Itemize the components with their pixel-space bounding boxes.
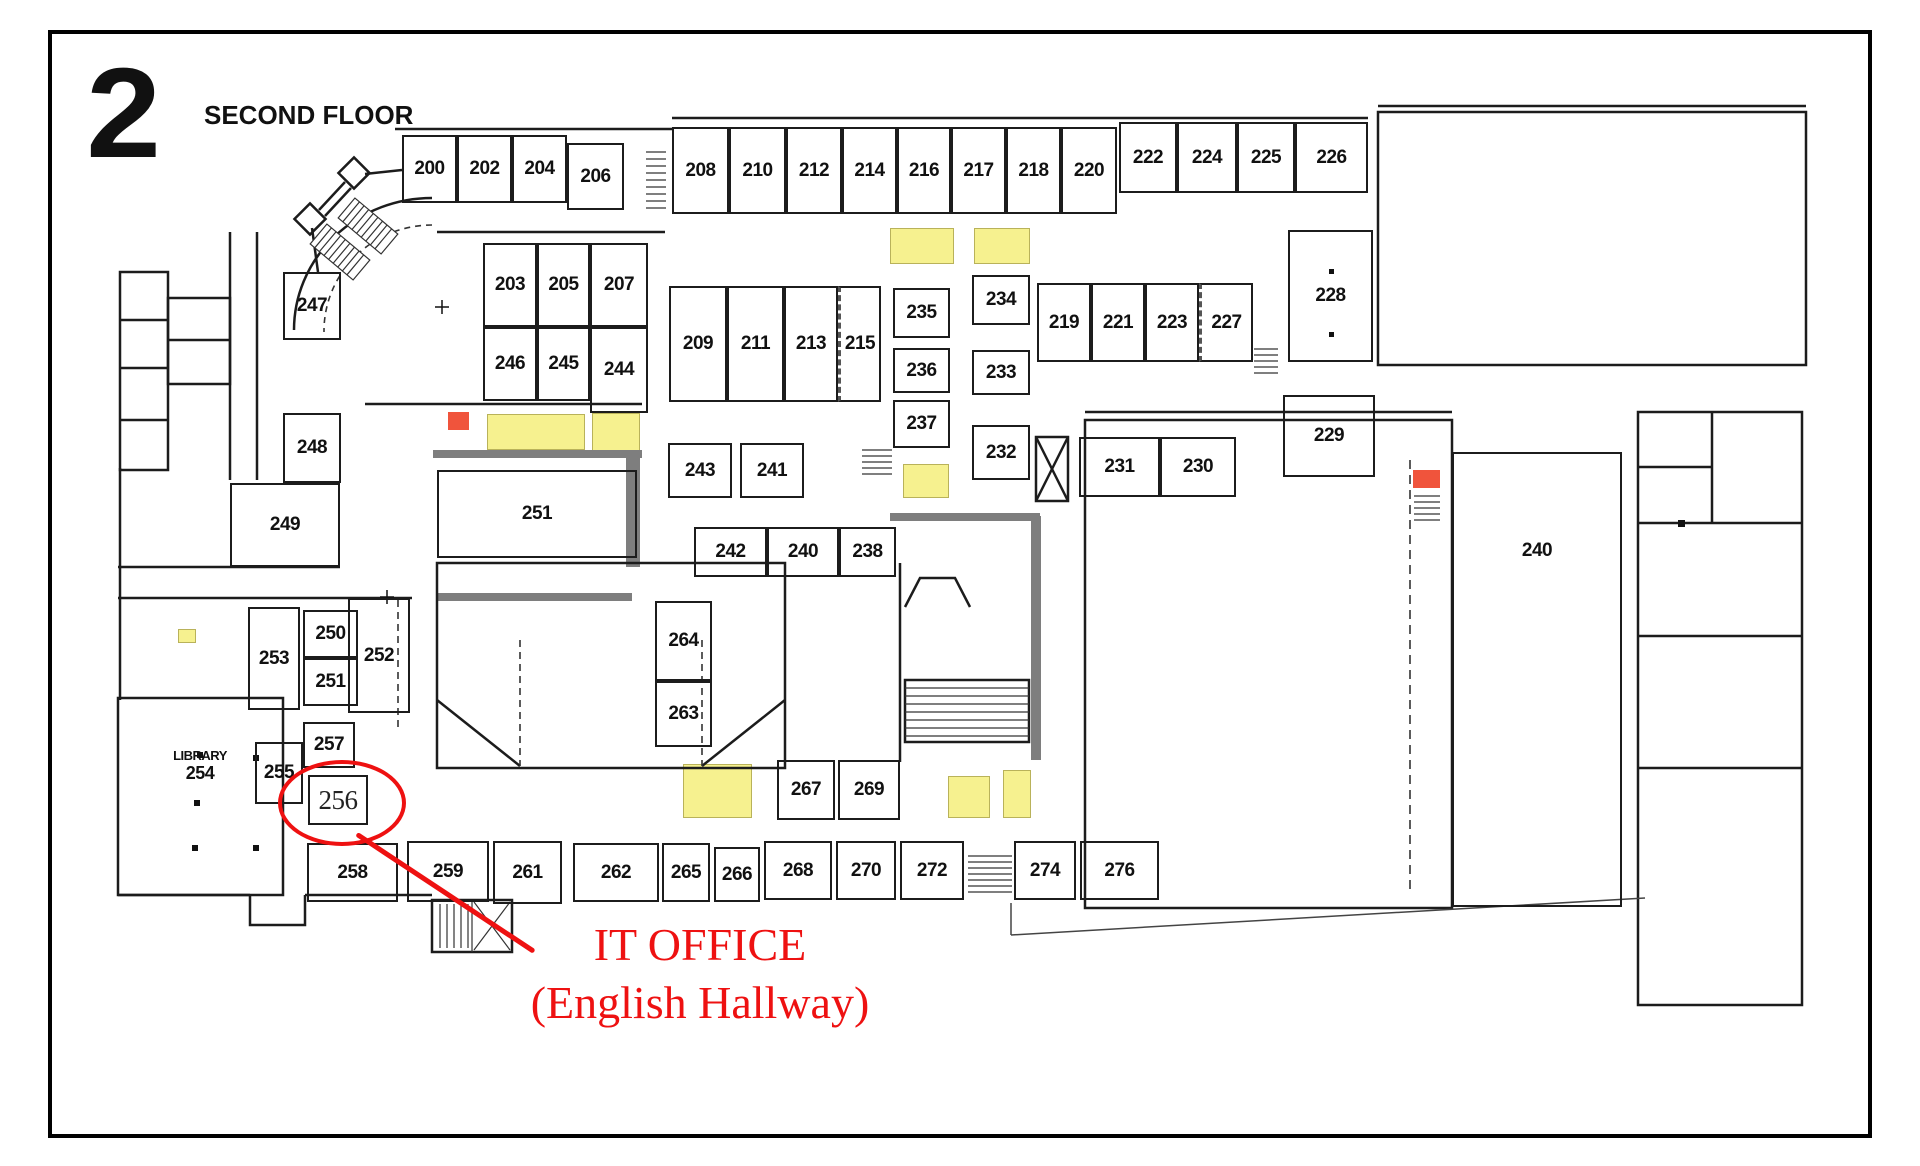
annotation-layer: IT OFFICE (English Hallway) <box>0 0 1920 1166</box>
annotation-title: IT OFFICE <box>430 916 970 974</box>
floor-plan: 2 SECOND FLOOR <box>0 0 1920 1166</box>
annotation-subtitle: (English Hallway) <box>430 974 970 1032</box>
annotation-circle <box>278 760 406 846</box>
annotation-text: IT OFFICE (English Hallway) <box>430 916 970 1031</box>
